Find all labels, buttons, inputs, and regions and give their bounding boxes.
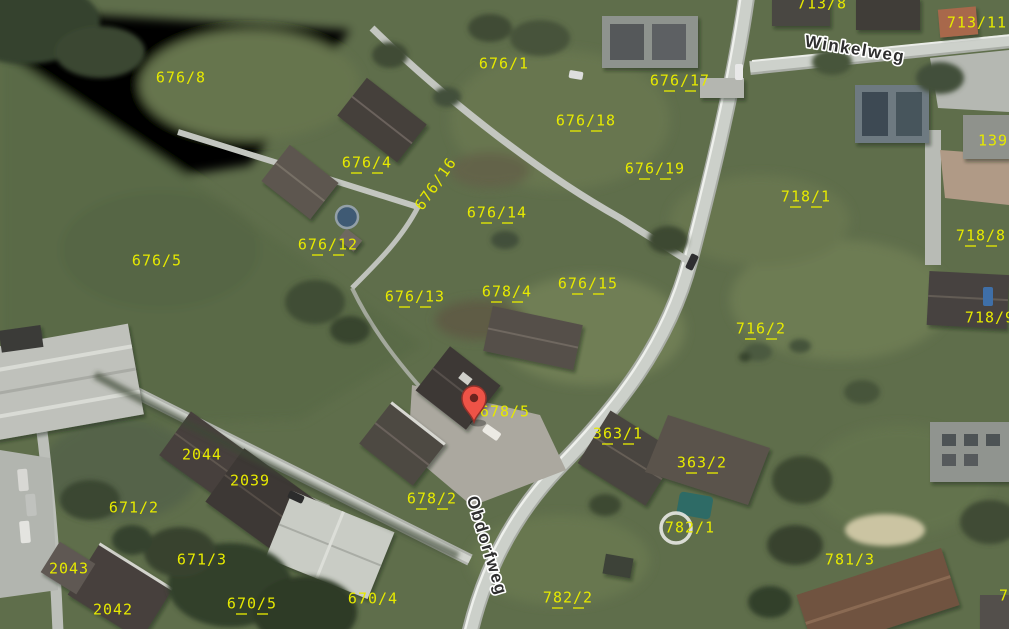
parcel-label: 716/2: [736, 320, 786, 338]
parcel-label: 676/18: [556, 112, 616, 130]
parcel-label: 1397: [978, 132, 1009, 150]
parcel-label: 2044: [182, 446, 222, 464]
parcel-label: 713/8: [797, 0, 847, 13]
parcel-label: 678/4: [482, 283, 532, 301]
parcel-label: 678/5: [480, 403, 530, 421]
parcel-label: 363/1: [593, 425, 643, 443]
parcel-label: 2043: [49, 560, 89, 578]
parcel-label: 676/5: [132, 252, 182, 270]
marker-pin-dot: [470, 394, 478, 402]
parcel-label: 718/8: [956, 227, 1006, 245]
parcel-label: 676/1: [479, 55, 529, 73]
parcel-label: 2039: [230, 472, 270, 490]
parcel-label: 676/19: [625, 160, 685, 178]
parcel-label: 781/3: [825, 551, 875, 569]
map-viewport[interactable]: 676/8676/1676/17676/18676/19713/8713/111…: [0, 0, 1009, 629]
parcel-label: 671/3: [177, 551, 227, 569]
marker-shadow: [470, 420, 486, 427]
parcel-label: 670/5: [227, 595, 277, 613]
parcel-label: 676/15: [558, 275, 618, 293]
parcel-label: 676/17: [650, 72, 710, 90]
parcel-label: 670/4: [348, 590, 398, 608]
parcel-label: 676/12: [298, 236, 358, 254]
parcel-label: 782/2: [543, 589, 593, 607]
map-canvas[interactable]: 676/8676/1676/17676/18676/19713/8713/111…: [0, 0, 1009, 629]
parcel-label: 676/4: [342, 154, 392, 172]
parcel-label: 713/11: [947, 14, 1007, 32]
aerial-imagery: [0, 0, 1009, 629]
parcel-label: 718/9: [965, 309, 1009, 327]
parcel-label: 676/8: [156, 69, 206, 87]
parcel-label: 363/2: [677, 454, 727, 472]
parcel-label: 671/2: [109, 499, 159, 517]
parcel-label: 2042: [93, 601, 133, 619]
parcel-label: 718/1: [781, 188, 831, 206]
parcel-label: 678/2: [407, 490, 457, 508]
parcel-label: 676/14: [467, 204, 527, 222]
parcel-label: 7: [999, 587, 1009, 605]
parcel-label: 676/13: [385, 288, 445, 306]
parcel-label: 782/1: [665, 519, 715, 537]
